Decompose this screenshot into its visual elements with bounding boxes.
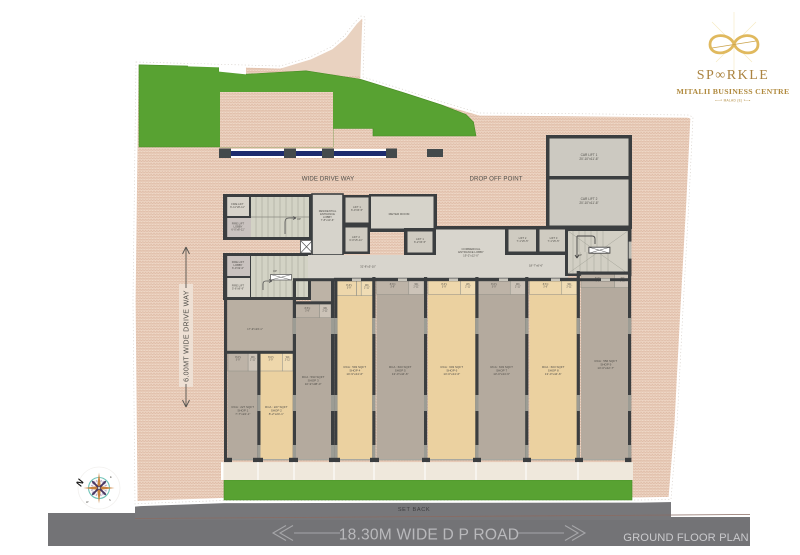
svg-text:32'-8"x5'-10": 32'-8"x5'-10" xyxy=(360,265,376,269)
svg-text:S: S xyxy=(109,498,111,502)
svg-text:FIRE LIFT5'-6"x9'-9": FIRE LIFT5'-6"x9'-9" xyxy=(232,284,245,291)
svg-text:6.00MT WIDE DRIVE WAY: 6.00MT WIDE DRIVE WAY xyxy=(183,290,191,382)
svg-text:18.30M WIDE D P ROAD: 18.30M WIDE D P ROAD xyxy=(339,527,520,544)
svg-text:MITALII BUSINESS CENTRE: MITALII BUSINESS CENTRE xyxy=(677,87,790,96)
svg-text:E: E xyxy=(110,475,112,479)
svg-text:CAR LIFT 120'-10"x11'-6": CAR LIFT 120'-10"x11'-6" xyxy=(579,153,598,161)
svg-text:RESIDENTIALENTRANCELOBBY7'-8"x: RESIDENTIALENTRANCELOBBY7'-8"x13'-6" xyxy=(319,209,337,222)
svg-text:METER ROOM: METER ROOM xyxy=(389,212,410,216)
svg-text:UP: UP xyxy=(297,217,301,221)
svg-text:SP∞RKLE: SP∞RKLE xyxy=(697,68,770,83)
svg-text:SET BACK: SET BACK xyxy=(398,507,430,513)
svg-text:CAR LIFT 220'-10"x11'-6": CAR LIFT 220'-10"x11'-6" xyxy=(579,197,598,205)
svg-text:18'-7"x6'-6": 18'-7"x6'-6" xyxy=(529,264,543,268)
svg-text:•—« MALAD (E) »—•: •—« MALAD (E) »—• xyxy=(715,99,750,103)
svg-text:UP: UP xyxy=(578,253,582,257)
svg-text:17'-9"x23'-1": 17'-9"x23'-1" xyxy=(247,327,263,331)
svg-text:UP: UP xyxy=(273,269,277,273)
svg-text:GROUND FLOOR PLAN: GROUND FLOOR PLAN xyxy=(623,532,748,544)
svg-text:WIDE DRIVE WAY: WIDE DRIVE WAY xyxy=(302,176,355,183)
svg-text:DROP OFF POINT: DROP OFF POINT xyxy=(469,176,522,183)
svg-text:FIRE LIFT6'-11"x8'-11": FIRE LIFT6'-11"x8'-11" xyxy=(230,202,245,209)
